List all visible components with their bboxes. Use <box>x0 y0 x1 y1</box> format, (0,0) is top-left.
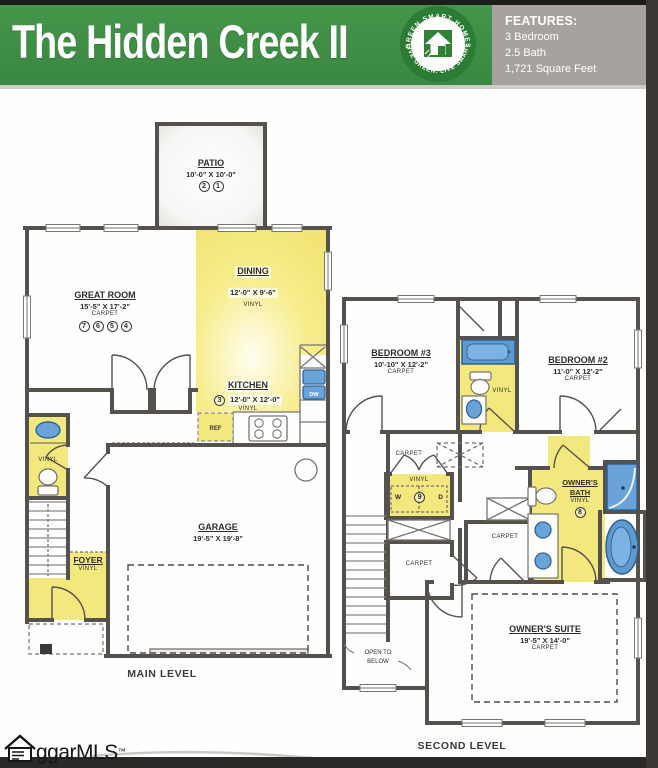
washer-dryer-row: W 9 D <box>395 492 443 503</box>
dishwasher-label: DW <box>309 392 319 398</box>
floorplan-sheet: The Hidden Creek II GREEN SMART HOMES LI… <box>0 0 658 768</box>
vanity-sink-1-icon <box>535 522 551 538</box>
feature-bedrooms: 3 Bedroom <box>505 30 646 45</box>
plan-title: The Hidden Creek II <box>12 14 348 69</box>
garage-label: GARAGE 19'-5" X 19'-8" <box>138 522 298 543</box>
powder-toilet-icon <box>39 469 57 485</box>
washer-label: W <box>395 494 401 501</box>
refrigerator-label: REF <box>210 426 222 432</box>
frame-top <box>0 0 658 5</box>
photo-marker-2: 2 <box>199 181 210 192</box>
mls-trademark: ™ <box>118 747 126 756</box>
bedroom3-label: BEDROOM #3 10'-10" X 12'-2" CARPET <box>345 348 457 377</box>
photo-marker-9: 9 <box>414 492 425 503</box>
open-to-below-label: OPEN TO BELOW <box>350 649 406 666</box>
features-panel: FEATURES: 3 Bedroom 2.5 Bath 1,721 Squar… <box>492 5 646 85</box>
mls-brand-text: ggarMLS <box>36 741 118 765</box>
owners-suite-label: OWNER'S SUITE 19'-5" X 14'-0" CARPET <box>455 624 635 653</box>
photo-marker-4: 4 <box>121 321 132 332</box>
great-room-label: GREAT ROOM 15'-5" X 17'-2" CARPET 7 6 5 … <box>40 290 170 332</box>
stove-icon <box>249 416 287 441</box>
kitchen-sink-icon <box>303 370 325 384</box>
dining-label: DINING 12'-0" X 9'-6" VINYL <box>196 260 310 309</box>
photo-marker-7: 7 <box>79 321 90 332</box>
hall-label: CARPET <box>388 451 430 459</box>
owners-bath-label: OWNER'S BATH VINYL 8 <box>551 478 609 518</box>
main-level-caption: MAIN LEVEL <box>82 668 242 680</box>
green-smart-homes-logo: GREEN SMART HOMES LIVE GREEN. LIVE SMART <box>398 4 478 84</box>
feature-baths: 2.5 Bath <box>505 46 646 61</box>
bedroom2-label: BEDROOM #2 11'-0" X 12'-2" CARPET <box>520 355 636 384</box>
porch-post <box>40 644 52 654</box>
mls-logo: ggarMLS ™ <box>2 733 126 765</box>
frame-right <box>646 0 658 768</box>
second-stairs <box>346 516 386 633</box>
photo-marker-5: 5 <box>107 321 118 332</box>
photo-marker-3: 3 <box>214 395 225 406</box>
photo-marker-6: 6 <box>93 321 104 332</box>
garage-parking-outline <box>128 565 308 653</box>
second-level-caption: SECOND LEVEL <box>392 740 532 752</box>
patio-label: PATIO 10'-0" X 10'-0" 2 1 <box>155 158 267 192</box>
feature-sqft: 1,721 Square Feet <box>505 62 646 77</box>
dryer-label: D <box>438 494 443 501</box>
photo-marker-1: 1 <box>213 181 224 192</box>
vanity-sink-2-icon <box>535 553 551 569</box>
laundry-label: VINYL <box>392 477 446 485</box>
hall-closet-label: CARPET <box>393 561 445 569</box>
logo-seal-icon: GREEN SMART HOMES LIVE GREEN. LIVE SMART <box>398 4 478 84</box>
hall-bath-label: VINYL <box>486 388 518 396</box>
features-heading: FEATURES: <box>505 14 646 28</box>
owner-closet-label: CARPET <box>479 534 531 542</box>
water-heater-icon <box>295 459 317 481</box>
owners-toilet-icon <box>528 487 536 506</box>
mls-house-icon <box>2 733 38 765</box>
foyer-label: FOYER VINYL <box>59 555 117 574</box>
header-divider <box>0 85 646 89</box>
powder-sink-icon <box>36 422 60 438</box>
photo-marker-8: 8 <box>575 507 586 518</box>
kitchen-label: KITCHEN 3 12'-0" X 12'-0" VINYL <box>196 374 300 414</box>
powder-room-label: VINYL <box>30 457 66 465</box>
hall-toilet-icon <box>470 372 491 380</box>
